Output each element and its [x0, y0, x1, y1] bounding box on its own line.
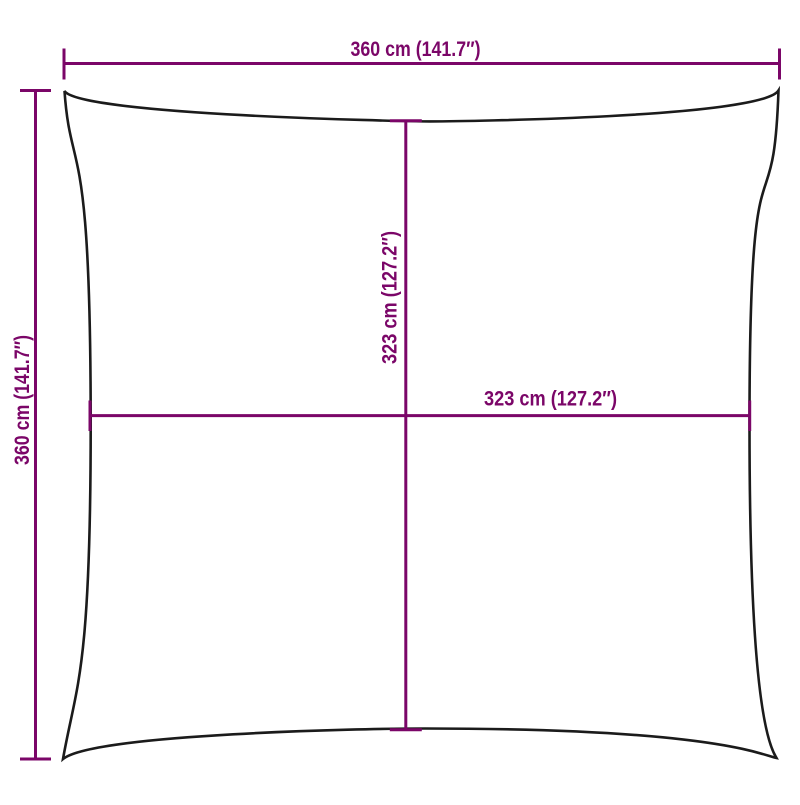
svg-text:323 cm (127.2″): 323 cm (127.2″) — [484, 388, 617, 411]
svg-text:323 cm (127.2″): 323 cm (127.2″) — [379, 231, 402, 364]
svg-text:360 cm (141.7″): 360 cm (141.7″) — [11, 335, 34, 465]
svg-text:360 cm (141.7″): 360 cm (141.7″) — [351, 38, 481, 61]
